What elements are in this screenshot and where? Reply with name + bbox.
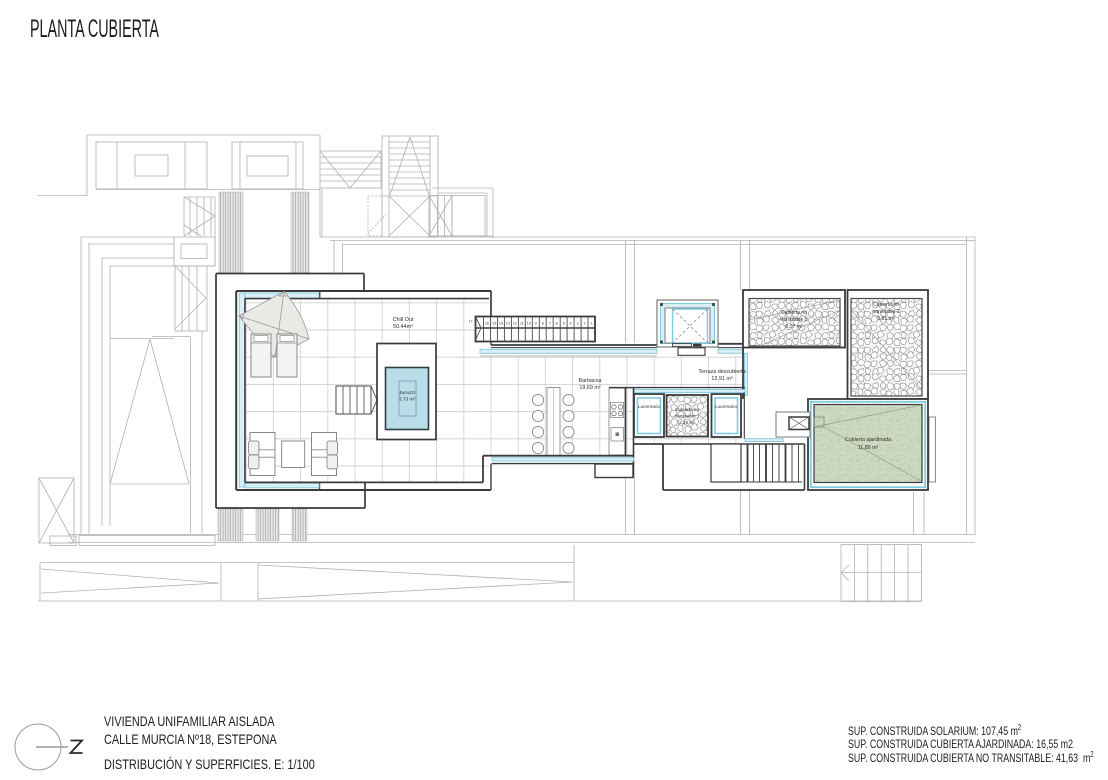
svg-text:3,73 m²: 3,73 m² [399, 397, 416, 403]
svg-text:16: 16 [485, 321, 489, 325]
svg-text:13: 13 [506, 321, 510, 325]
svg-text:10: 10 [527, 321, 531, 325]
svg-text:Cubierta no: Cubierta no [781, 310, 807, 316]
svg-text:Cubierta no: Cubierta no [873, 302, 899, 308]
svg-text:Lucernario: Lucernario [638, 404, 661, 409]
svg-text:19,69 m²: 19,69 m² [579, 385, 600, 391]
svg-text:5: 5 [563, 321, 565, 325]
svg-text:9,81 m²: 9,81 m² [878, 316, 895, 322]
svg-text:17: 17 [469, 320, 473, 324]
svg-text:6: 6 [556, 321, 558, 325]
svg-text:Jacuzzi: Jacuzzi [399, 390, 415, 396]
svg-text:15: 15 [492, 321, 496, 325]
svg-text:11: 11 [520, 321, 524, 325]
svg-text:12,91 m²: 12,91 m² [711, 376, 732, 382]
svg-text:50.44m²: 50.44m² [393, 324, 413, 330]
svg-text:Chill Out: Chill Out [393, 317, 414, 323]
svg-text:4: 4 [570, 321, 572, 325]
svg-text:1: 1 [591, 321, 593, 325]
svg-text:Barbacoa: Barbacoa [578, 378, 601, 384]
svg-text:7: 7 [549, 321, 551, 325]
svg-text:12: 12 [513, 321, 517, 325]
svg-text:2,25 m²: 2,25 m² [679, 420, 695, 425]
svg-text:transitable 1: transitable 1 [674, 414, 699, 419]
svg-text:Terraza descubierta: Terraza descubierta [698, 369, 745, 375]
svg-text:Lucernario: Lucernario [715, 404, 738, 409]
svg-text:Cubierta no: Cubierta no [675, 407, 699, 412]
svg-text:8: 8 [542, 321, 544, 325]
svg-text:transitable 2: transitable 2 [872, 309, 899, 315]
svg-text:14: 14 [499, 321, 503, 325]
svg-text:3: 3 [577, 321, 579, 325]
svg-text:Cubierta ajardinada: Cubierta ajardinada [845, 437, 891, 443]
svg-text:11,89 m²: 11,89 m² [858, 445, 879, 451]
svg-text:6,07 m²: 6,07 m² [786, 324, 803, 330]
svg-text:2: 2 [584, 321, 586, 325]
svg-text:transitable 3: transitable 3 [780, 317, 807, 323]
svg-text:9: 9 [535, 321, 537, 325]
